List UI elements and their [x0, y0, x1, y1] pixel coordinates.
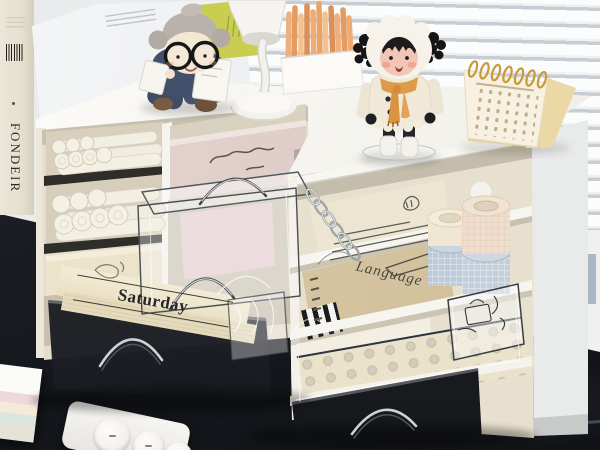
desk-shadows: [32, 387, 537, 447]
book-spine-title: FONDEIR: [7, 110, 23, 206]
desk-calendar: [460, 60, 576, 154]
clear-tape-case: [228, 292, 288, 360]
ring-notebook-details: [304, 187, 446, 262]
photo-desk-organizer-scene: FONDEIR Saturday Language: [0, 0, 600, 450]
pink-drawer-signature: [210, 148, 274, 170]
girl-doll: [353, 15, 446, 165]
notepad-doodle: [95, 262, 124, 278]
grandma-doll: [139, 2, 236, 115]
sketch-pattern-case: [448, 284, 524, 360]
orange-pencil-cup: [281, 4, 363, 94]
detail-overlay: [0, 0, 600, 450]
